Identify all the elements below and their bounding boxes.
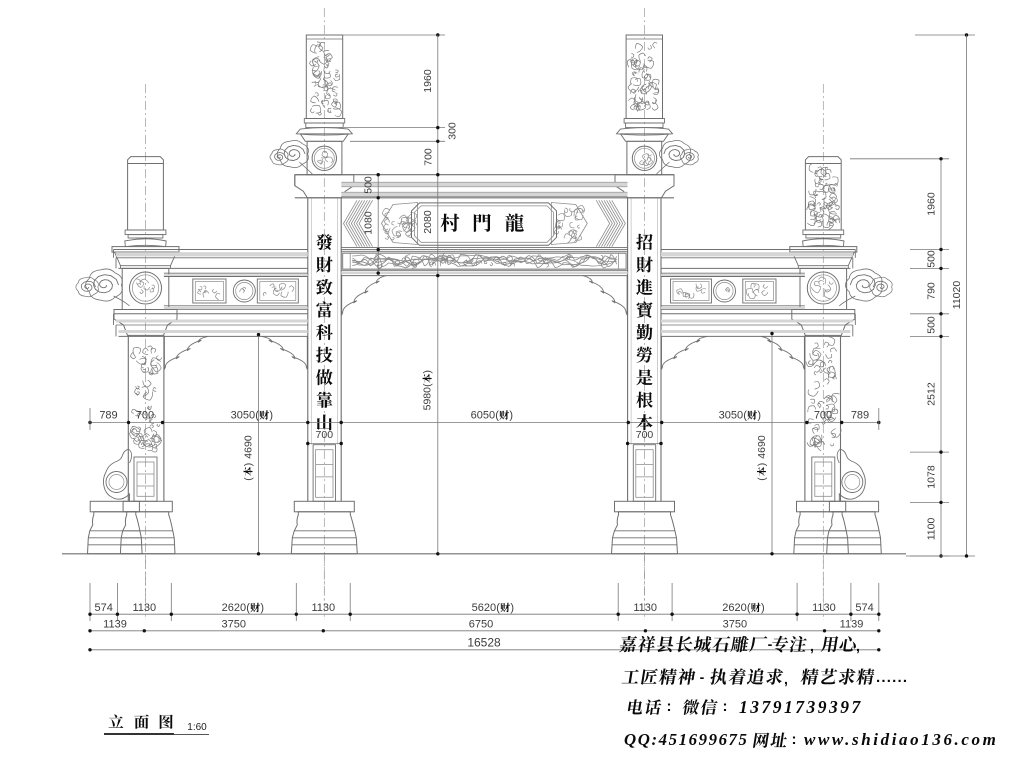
svg-text:(: ( (756, 477, 768, 481)
svg-text:3050: 3050 (231, 410, 255, 422)
svg-text:,: , (784, 671, 788, 687)
svg-text:700: 700 (423, 148, 435, 166)
svg-text:789: 789 (99, 410, 117, 422)
svg-text:(: ( (747, 602, 751, 614)
svg-text:1130: 1130 (633, 602, 657, 614)
svg-text:......: ...... (876, 669, 908, 686)
svg-text:): ) (509, 410, 513, 422)
svg-text:11020: 11020 (951, 281, 963, 310)
svg-text:): ) (761, 602, 765, 614)
svg-text:1130: 1130 (812, 602, 836, 614)
svg-text:1139: 1139 (840, 619, 864, 631)
svg-text:6750: 6750 (469, 619, 493, 631)
svg-text:-: - (768, 636, 773, 652)
svg-text:1080: 1080 (363, 211, 375, 235)
svg-text:2620: 2620 (722, 602, 746, 614)
svg-text:700: 700 (136, 410, 154, 422)
svg-text:700: 700 (814, 410, 832, 422)
svg-text:(: ( (496, 602, 500, 614)
svg-text:790: 790 (926, 282, 938, 300)
svg-text:(: ( (743, 410, 747, 422)
svg-text:(: ( (495, 410, 499, 422)
svg-text:QQ:451699675: QQ:451699675 (624, 730, 749, 749)
svg-text:789: 789 (851, 410, 869, 422)
svg-text:,: , (856, 638, 860, 654)
svg-text:13791739397: 13791739397 (739, 697, 863, 717)
svg-text:4690: 4690 (756, 435, 768, 459)
svg-text:-: - (700, 669, 705, 685)
svg-text:700: 700 (316, 429, 334, 441)
svg-text:2512: 2512 (926, 382, 938, 406)
svg-text:www.shidiao136.com: www.shidiao136.com (804, 730, 998, 749)
svg-text:3750: 3750 (222, 619, 246, 631)
svg-text:2620: 2620 (222, 602, 246, 614)
svg-text:): ) (260, 602, 264, 614)
svg-text:3050: 3050 (719, 410, 743, 422)
svg-text:1100: 1100 (926, 518, 938, 541)
svg-text:5620: 5620 (472, 602, 496, 614)
svg-text:,: , (810, 638, 814, 654)
svg-text:): ) (269, 410, 273, 422)
svg-text:): ) (757, 410, 761, 422)
svg-text:): ) (243, 463, 255, 467)
svg-text:300: 300 (447, 122, 459, 140)
svg-text:1130: 1130 (311, 602, 335, 614)
svg-text::: : (723, 698, 728, 715)
svg-text:16528: 16528 (467, 636, 501, 650)
svg-text:(: ( (422, 383, 434, 387)
svg-text:1078: 1078 (926, 465, 938, 489)
svg-text:574: 574 (855, 602, 873, 614)
svg-text:(: ( (243, 477, 255, 481)
svg-text:2080: 2080 (422, 210, 434, 234)
svg-text:1:60: 1:60 (187, 722, 207, 733)
svg-text:4690: 4690 (243, 435, 255, 459)
svg-text:): ) (756, 463, 768, 467)
svg-text:1960: 1960 (422, 69, 434, 93)
svg-text:5980: 5980 (422, 387, 434, 411)
svg-text:500: 500 (926, 316, 938, 334)
svg-text:1960: 1960 (926, 192, 938, 216)
svg-text:6050: 6050 (471, 410, 495, 422)
svg-text:700: 700 (636, 429, 654, 441)
svg-text:1139: 1139 (103, 619, 127, 631)
svg-text:): ) (422, 370, 434, 374)
svg-text:500: 500 (363, 176, 375, 194)
svg-text:3750: 3750 (723, 619, 747, 631)
svg-text::: : (667, 698, 672, 715)
svg-text:(: ( (246, 602, 250, 614)
svg-text::: : (792, 731, 797, 748)
svg-text:1130: 1130 (132, 602, 156, 614)
svg-text:500: 500 (926, 250, 938, 268)
svg-text:): ) (510, 602, 514, 614)
svg-text:574: 574 (95, 602, 113, 614)
svg-text:(: ( (255, 410, 259, 422)
